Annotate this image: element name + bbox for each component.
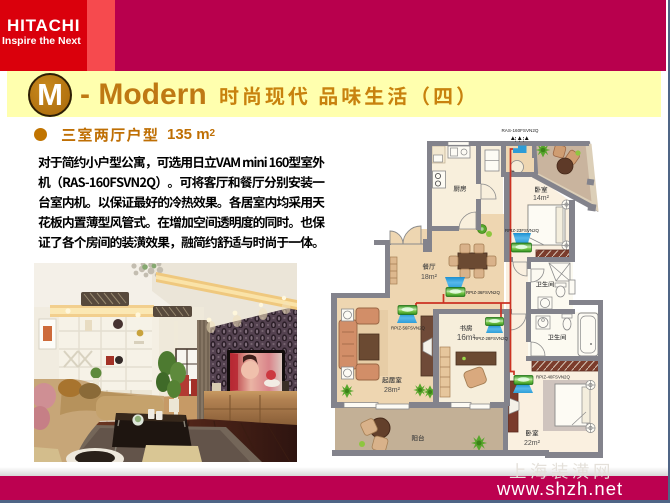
svg-text:16m²: 16m² (457, 333, 476, 342)
svg-text:22m²: 22m² (524, 440, 541, 447)
svg-text:14m²: 14m² (533, 195, 550, 202)
svg-text:RAS-160FSVN2Q: RAS-160FSVN2Q (501, 128, 538, 133)
svg-text:18m²: 18m² (421, 274, 438, 281)
svg-text:RPIZ-56FSVN2Q: RPIZ-56FSVN2Q (391, 326, 425, 331)
svg-text:RPIZ-36FSVN2Q: RPIZ-36FSVN2Q (466, 290, 500, 295)
svg-text:28m²: 28m² (384, 387, 401, 394)
svg-text:▲▲▲: ▲▲▲ (510, 135, 531, 142)
svg-text:RPIZ-28FSVN2Q: RPIZ-28FSVN2Q (474, 336, 508, 341)
svg-text:RPIZ-40FSVN2Q: RPIZ-40FSVN2Q (536, 375, 570, 380)
svg-text:RPIZ-23FSVN2Q: RPIZ-23FSVN2Q (505, 228, 539, 233)
